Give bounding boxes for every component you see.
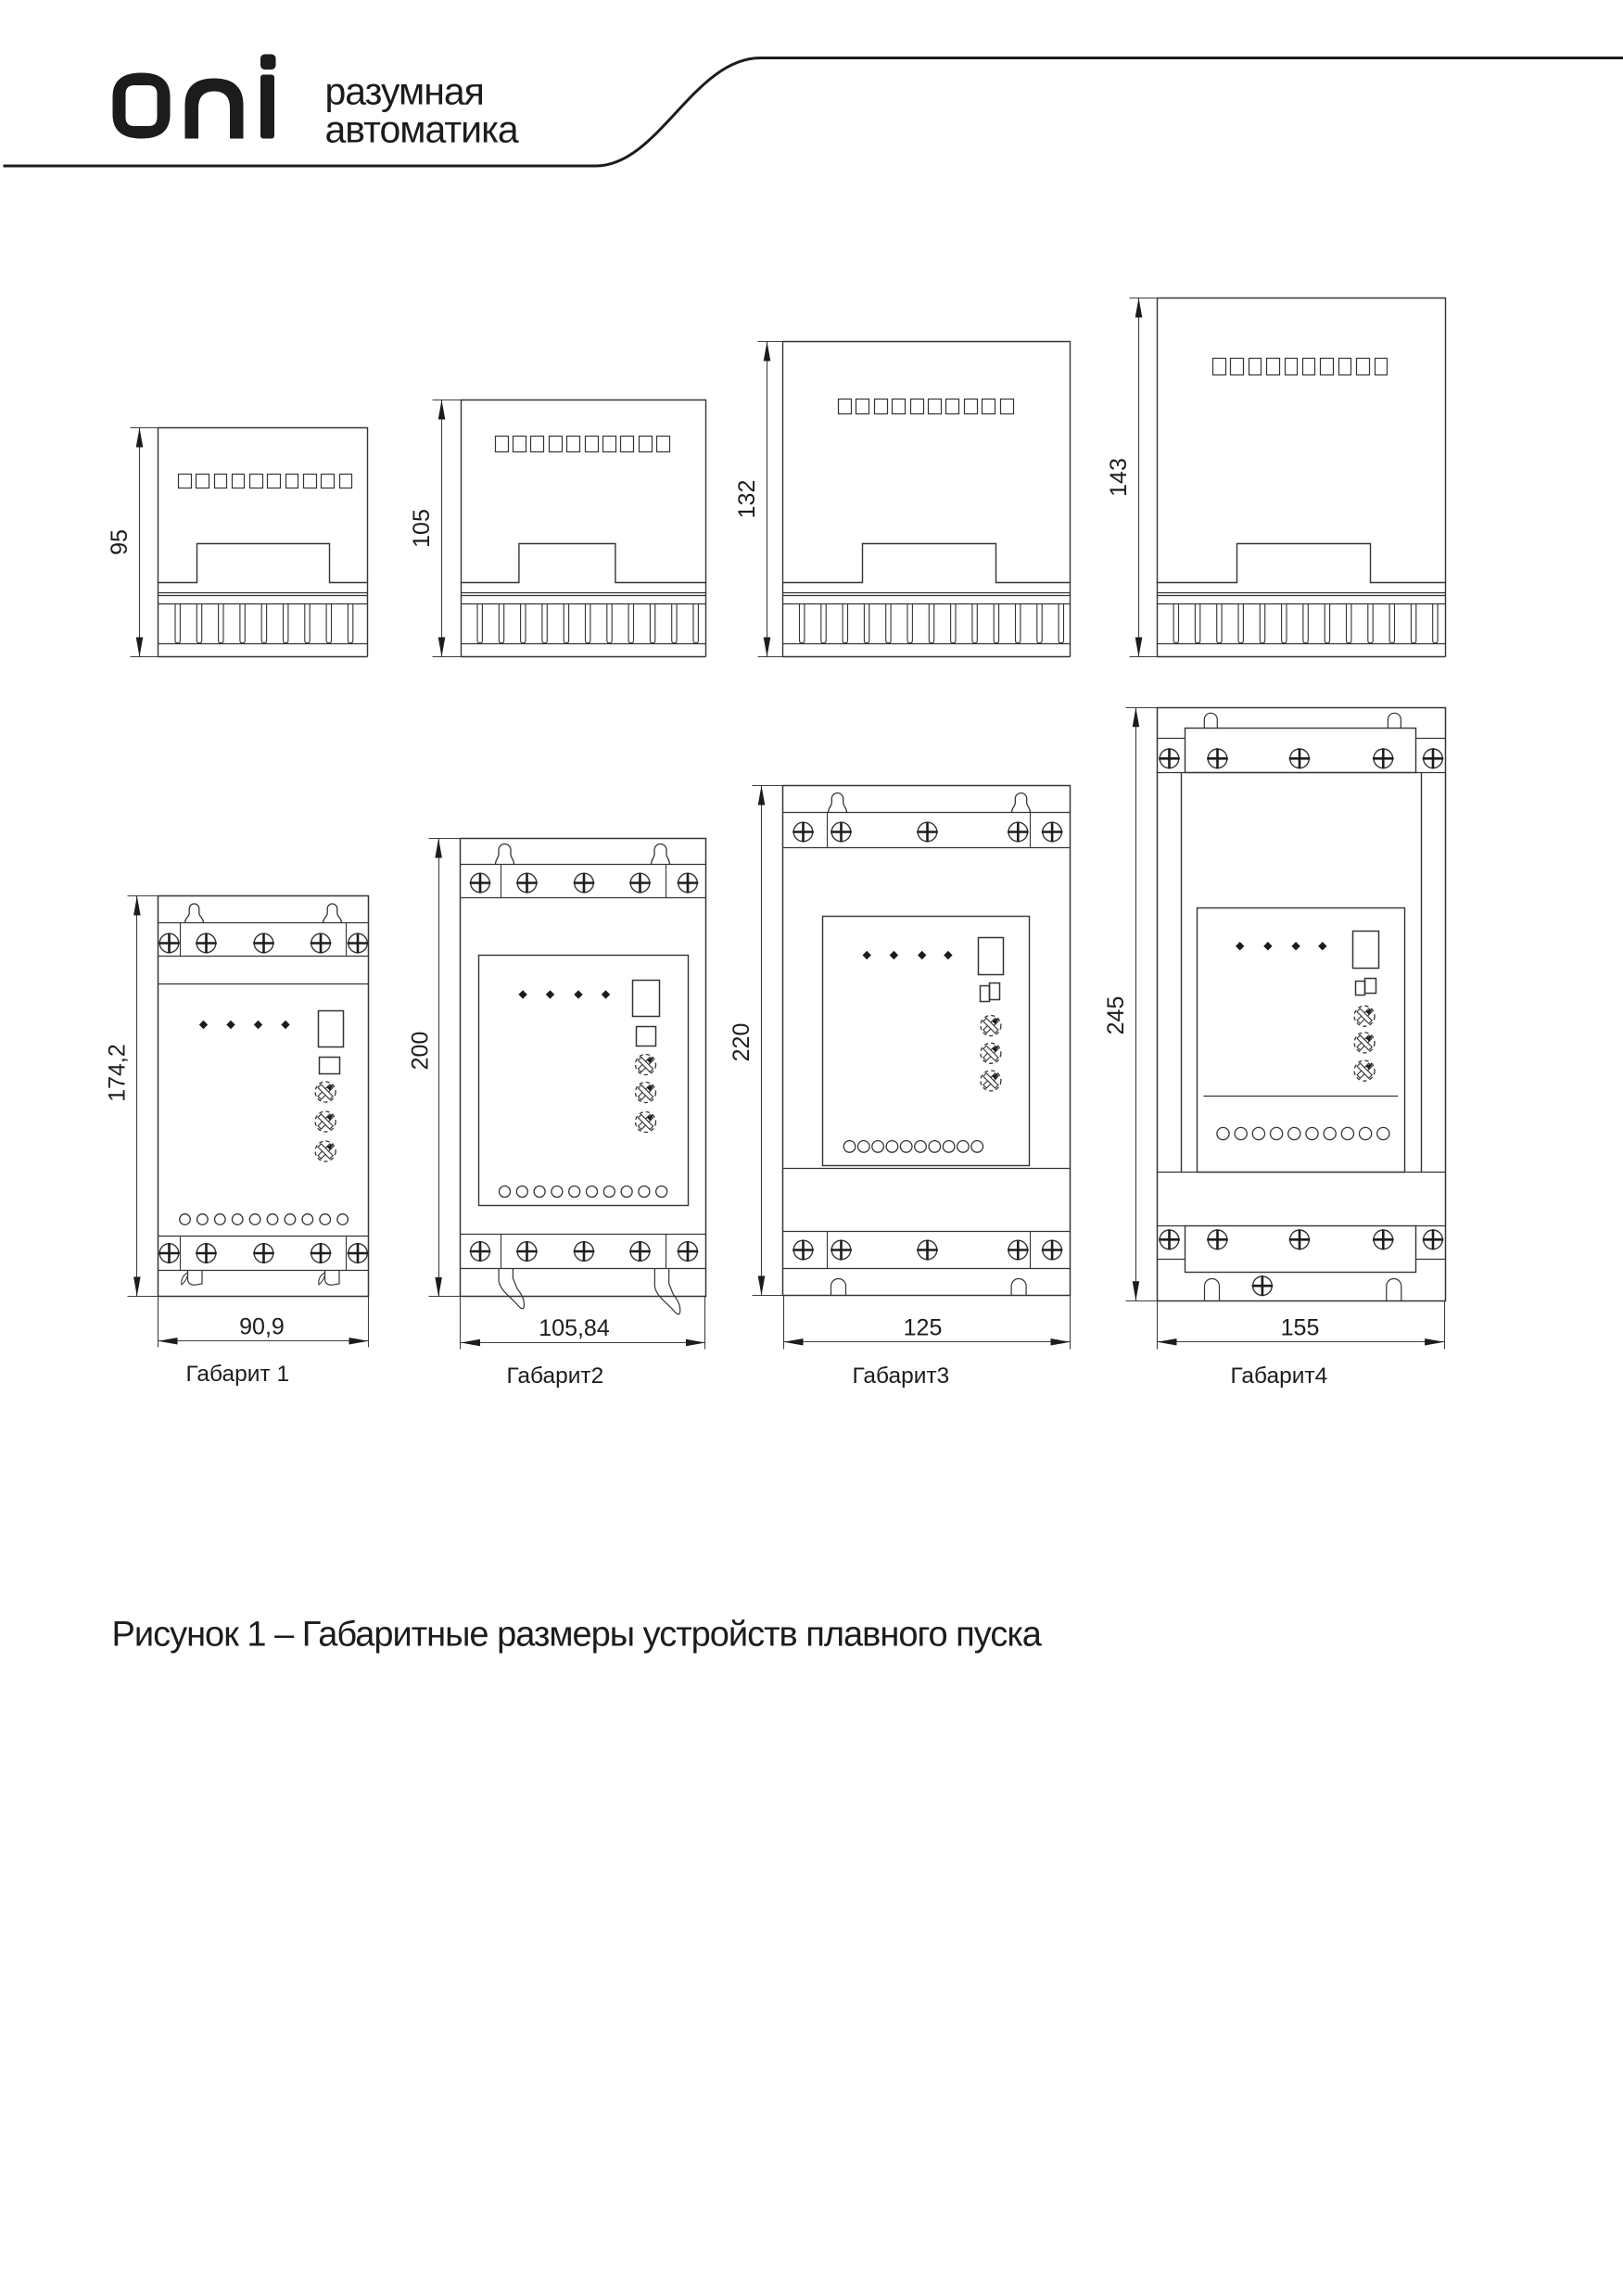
svg-text:220: 220 [729,1023,754,1062]
svg-text:132: 132 [734,480,760,519]
svg-text:155: 155 [1281,1314,1320,1340]
svg-text:Рисунок 1 – Габаритные размеры: Рисунок 1 – Габаритные размеры устройств… [112,1616,1043,1655]
svg-text:Габарит3: Габарит3 [853,1364,950,1389]
svg-text:Габарит 1: Габарит 1 [186,1362,290,1387]
svg-text:245: 245 [1103,996,1129,1035]
svg-text:Габарит4: Габарит4 [1231,1364,1328,1389]
svg-text:автоматика: автоматика [325,108,519,151]
svg-text:125: 125 [904,1314,943,1340]
svg-text:174,2: 174,2 [104,1044,130,1102]
svg-text:105,84: 105,84 [539,1315,610,1341]
svg-text:143: 143 [1106,458,1132,497]
svg-text:90,9: 90,9 [239,1314,285,1340]
svg-text:200: 200 [408,1032,434,1071]
svg-text:Габарит2: Габарит2 [507,1364,604,1389]
svg-text:разумная: разумная [325,70,484,113]
svg-text:105: 105 [409,509,435,548]
svg-text:95: 95 [107,529,133,555]
